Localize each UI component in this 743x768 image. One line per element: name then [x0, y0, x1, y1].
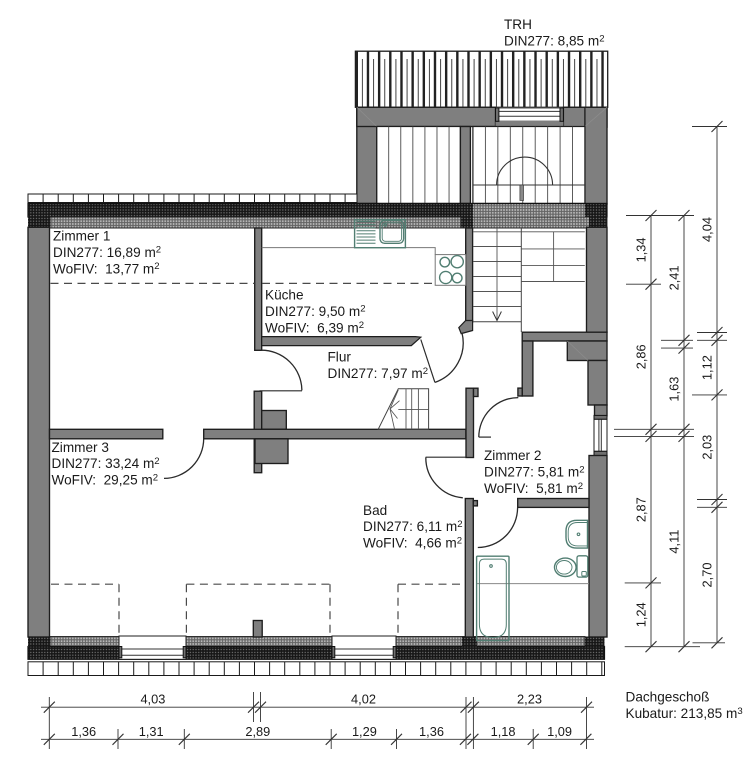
- svg-text:TRH: TRH: [504, 17, 532, 32]
- svg-text:WoFIV: 13,77 m2: WoFIV: 13,77 m2: [53, 261, 160, 276]
- svg-text:1,63: 1,63: [667, 377, 682, 402]
- svg-text:DIN277: 6,11 m2: DIN277: 6,11 m2: [363, 519, 463, 534]
- svg-text:4,11: 4,11: [667, 530, 682, 554]
- svg-text:2,70: 2,70: [700, 563, 715, 588]
- svg-text:1,24: 1,24: [634, 602, 649, 627]
- svg-text:Zimmer 2: Zimmer 2: [484, 448, 541, 463]
- svg-text:1,29: 1,29: [352, 724, 377, 739]
- svg-text:Bad: Bad: [363, 503, 387, 518]
- svg-text:DIN277: 16,89 m2: DIN277: 16,89 m2: [53, 245, 161, 260]
- svg-text:1,36: 1,36: [71, 724, 96, 739]
- svg-text:DIN277: 7,97 m2: DIN277: 7,97 m2: [328, 366, 429, 381]
- svg-text:Kubatur: 213,85 m3: Kubatur: 213,85 m3: [626, 706, 743, 721]
- svg-text:2,41: 2,41: [667, 265, 682, 290]
- svg-text:Küche: Küche: [265, 288, 304, 303]
- svg-text:Flur: Flur: [328, 350, 352, 365]
- svg-text:1,34: 1,34: [634, 237, 649, 262]
- svg-text:DIN277: 8,85 m2: DIN277: 8,85 m2: [504, 33, 605, 48]
- svg-text:1,36: 1,36: [419, 724, 444, 739]
- svg-text:4,03: 4,03: [140, 692, 165, 707]
- svg-text:1,09: 1,09: [547, 724, 572, 739]
- svg-text:1,31: 1,31: [139, 724, 164, 739]
- svg-text:2,23: 2,23: [517, 692, 542, 707]
- svg-text:4,04: 4,04: [700, 217, 715, 242]
- svg-text:WoFIV: 6,39 m2: WoFIV: 6,39 m2: [265, 320, 364, 335]
- svg-text:WoFIV: 29,25 m2: WoFIV: 29,25 m2: [52, 472, 159, 487]
- svg-text:DIN277: 9,50 m2: DIN277: 9,50 m2: [265, 304, 366, 319]
- svg-text:Dachgeschoß: Dachgeschoß: [626, 690, 710, 705]
- svg-text:4,02: 4,02: [351, 692, 376, 707]
- svg-text:2,89: 2,89: [245, 724, 270, 739]
- svg-text:2,87: 2,87: [634, 497, 649, 522]
- svg-text:WoFIV: 4,66 m2: WoFIV: 4,66 m2: [363, 535, 462, 550]
- svg-text:WoFIV: 5,81 m2: WoFIV: 5,81 m2: [484, 481, 583, 496]
- svg-text:Zimmer 3: Zimmer 3: [52, 440, 109, 455]
- svg-text:DIN277: 5,81 m2: DIN277: 5,81 m2: [484, 464, 585, 479]
- svg-text:2,03: 2,03: [700, 435, 715, 460]
- svg-text:2,86: 2,86: [634, 344, 649, 369]
- svg-text:DIN277: 33,24 m2: DIN277: 33,24 m2: [52, 456, 160, 471]
- svg-text:Zimmer 1: Zimmer 1: [53, 229, 110, 244]
- svg-text:1,18: 1,18: [491, 724, 516, 739]
- svg-text:1,12: 1,12: [700, 355, 715, 380]
